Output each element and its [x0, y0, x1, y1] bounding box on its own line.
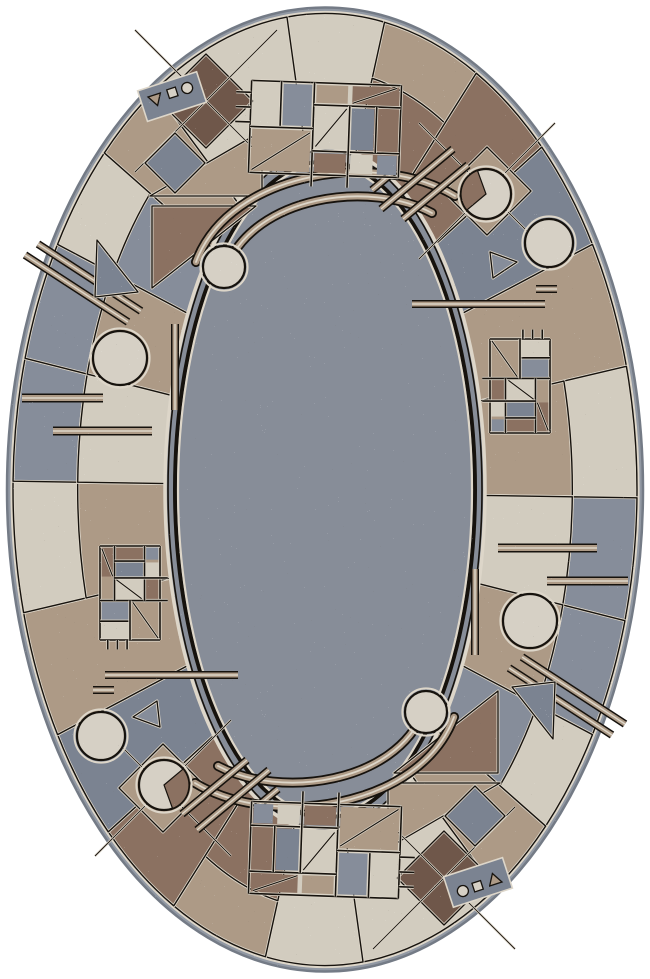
oval-rug-image: [0, 0, 650, 979]
rug-product-photo: Oval tufted area rug with Bauhaus-style …: [0, 0, 650, 979]
